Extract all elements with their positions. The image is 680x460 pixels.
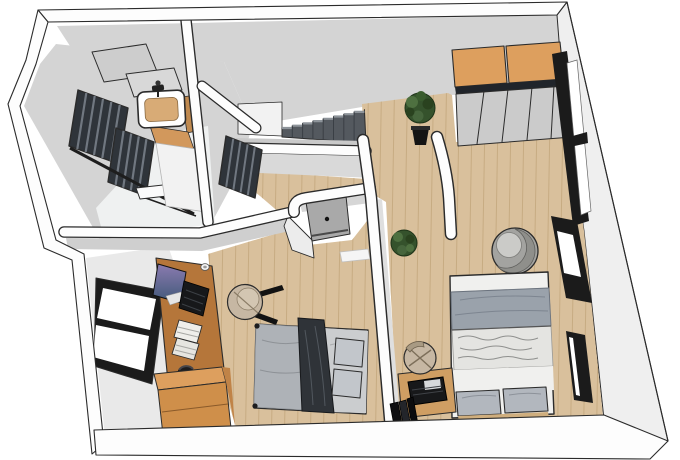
bed-duvet bbox=[254, 324, 306, 410]
bed-pillow-top bbox=[334, 338, 364, 367]
floorplan-3d-render bbox=[0, 0, 680, 460]
bed-textured-throw bbox=[452, 326, 553, 370]
floorplan-page bbox=[0, 0, 680, 460]
sink bbox=[137, 90, 186, 128]
mug-icon bbox=[201, 264, 209, 271]
bed-pillow-right bbox=[503, 387, 548, 413]
bed-duvet bbox=[451, 288, 551, 330]
bed-pillow-left bbox=[456, 390, 501, 416]
armchair bbox=[492, 228, 538, 274]
dresser bbox=[154, 367, 235, 435]
floor-plant bbox=[391, 230, 417, 256]
stool-right bbox=[404, 341, 436, 374]
wardrobe-sliding-doors bbox=[456, 85, 572, 146]
wardrobe-cabinet-left bbox=[452, 46, 507, 87]
bed-pillow-bottom bbox=[332, 369, 362, 398]
single-bed bbox=[252, 318, 368, 414]
double-bed bbox=[450, 272, 554, 422]
door-handle-icon bbox=[325, 217, 329, 221]
